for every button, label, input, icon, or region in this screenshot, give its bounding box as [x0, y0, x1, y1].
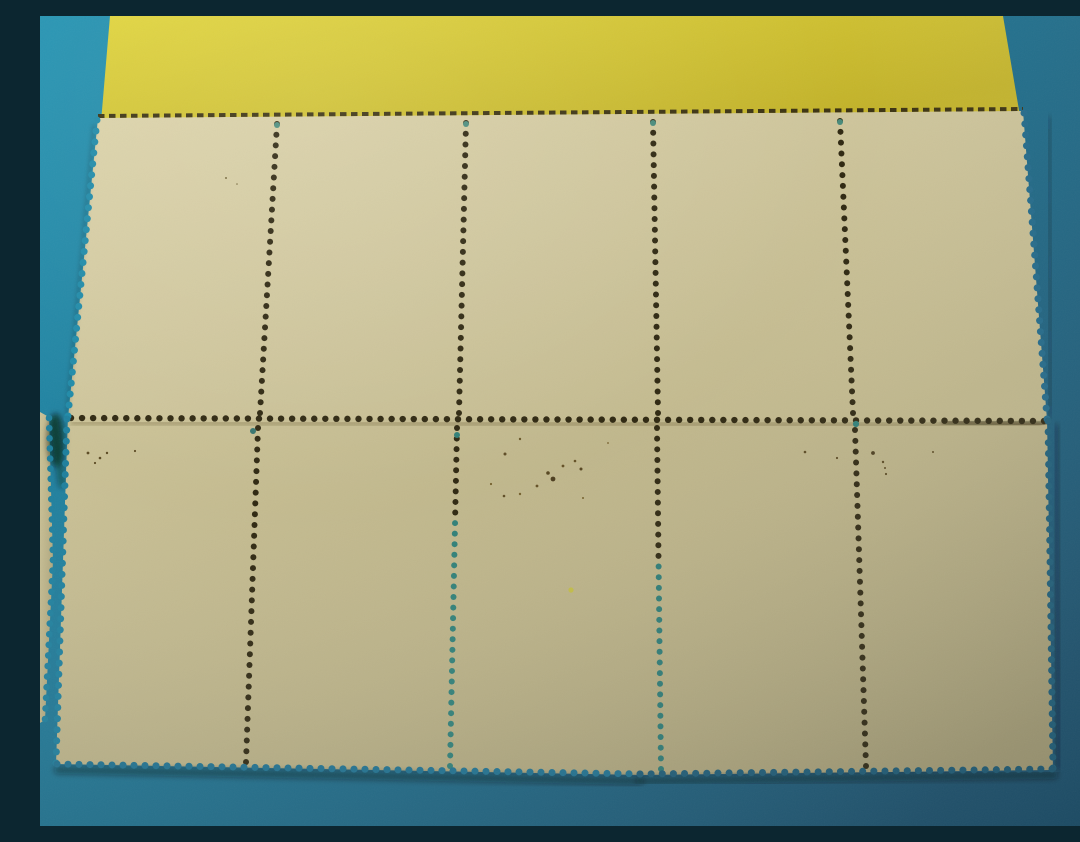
photo-grain: [40, 16, 1080, 826]
stamp-photo-canvas: [40, 16, 1080, 826]
stamp-photo: [40, 16, 1080, 826]
